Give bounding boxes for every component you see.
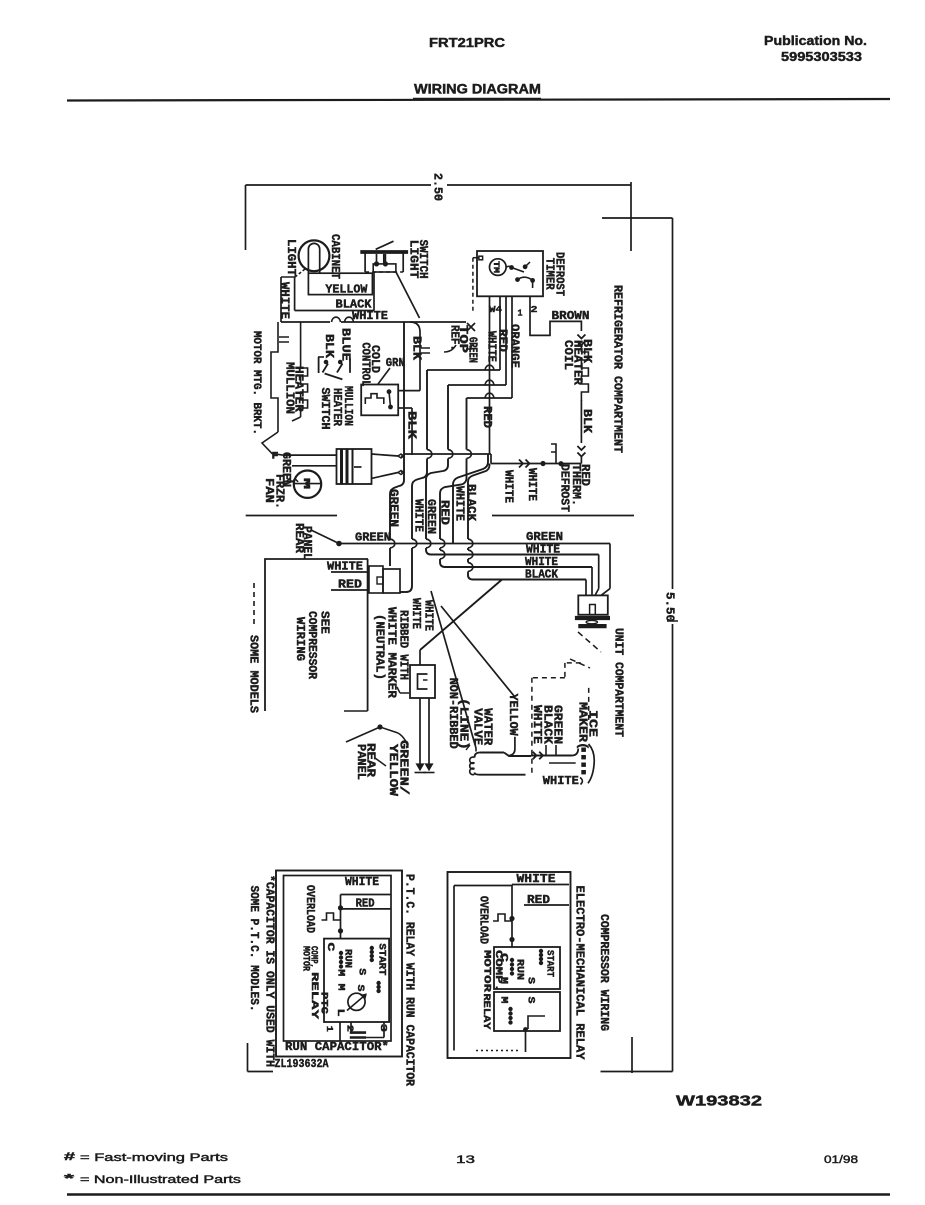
svg-text:W193832: W193832	[676, 1093, 762, 1109]
svg-text:GRN: GRN	[386, 357, 405, 370]
svg-text:13: 13	[456, 1154, 475, 1166]
svg-text:WIRING DIAGRAM: WIRING DIAGRAM	[414, 82, 541, 97]
svg-text:OVERLOAD: OVERLOAD	[303, 885, 316, 933]
svg-text:SEE: SEE	[317, 611, 330, 634]
svg-text:WHITE: WHITE	[411, 499, 424, 532]
svg-text:*CAPACITOR IS ONLY USED WITH: *CAPACITOR IS ONLY USED WITH	[263, 875, 276, 1067]
svg-text:ELECTRO-MECHANICAL RELAY: ELECTRO-MECHANICAL RELAY	[572, 886, 585, 1060]
svg-text:COMPRESSOR WIRING: COMPRESSOR WIRING	[597, 914, 610, 1031]
svg-text:BLK: BLK	[409, 336, 422, 360]
svg-text:WHITE: WHITE	[352, 310, 388, 323]
svg-text:BLK: BLK	[405, 411, 418, 439]
svg-text:S: S	[356, 968, 367, 975]
svg-text:WHITE: WHITE	[345, 876, 379, 889]
svg-text:WHITE: WHITE	[278, 282, 291, 319]
svg-text:SOME P.T.C. MODLES.: SOME P.T.C. MODLES.	[247, 886, 260, 1012]
svg-text:S: S	[354, 985, 365, 992]
svg-text:M: M	[335, 969, 346, 976]
svg-text:PANEL: PANEL	[300, 526, 313, 560]
svg-text:S: S	[525, 977, 536, 984]
svg-text:RUN: RUN	[342, 949, 353, 968]
svg-text:WHITE: WHITE	[421, 600, 434, 631]
svg-text:THERM.: THERM.	[569, 464, 582, 506]
svg-text:M: M	[335, 984, 346, 991]
svg-text:RUN CAPACITOR*: RUN CAPACITOR*	[285, 1040, 389, 1054]
svg-text:FAN: FAN	[262, 478, 275, 503]
svg-text:BLK: BLK	[580, 339, 593, 363]
svg-text:UNIT COMPARTMENT: UNIT COMPARTMENT	[611, 628, 624, 737]
svg-text:Publication No.: Publication No.	[764, 34, 867, 48]
svg-text:YELLOW: YELLOW	[506, 694, 519, 736]
svg-text:ZL193632A: ZL193632A	[275, 1058, 329, 1071]
svg-text:WHITE: WHITE	[543, 775, 579, 788]
svg-text:CABINET: CABINET	[328, 234, 341, 279]
svg-text:MAKER(: MAKER(	[575, 702, 588, 750]
svg-text:RED: RED	[437, 500, 450, 525]
svg-text:01/98: 01/98	[824, 1154, 858, 1166]
svg-text:= Non-Illustrated Parts: = Non-Illustrated Parts	[80, 1174, 242, 1186]
svg-text:5995303533: 5995303533	[781, 50, 862, 64]
svg-text:DEFROST: DEFROST	[553, 252, 566, 296]
svg-text:*: *	[64, 1172, 75, 1186]
svg-text:GREEN: GREEN	[424, 499, 437, 534]
svg-text:3: 3	[378, 1024, 388, 1032]
svg-text:2.50: 2.50	[430, 173, 443, 201]
svg-text:GREEN: GREEN	[355, 531, 391, 544]
svg-text:S: S	[525, 997, 536, 1004]
svg-text:WHITE: WHITE	[530, 705, 543, 744]
svg-text:= Fast-moving Parts: = Fast-moving Parts	[80, 1152, 229, 1164]
svg-text:RED: RED	[496, 329, 509, 352]
svg-text:START: START	[375, 943, 386, 975]
svg-text:1: 1	[324, 1026, 334, 1033]
svg-text:HEATER: HEATER	[292, 366, 305, 412]
svg-text:BLACK: BLACK	[464, 484, 477, 521]
svg-text:P.T.C. RELAY WITH RUN CAPACITO: P.T.C. RELAY WITH RUN CAPACITOR	[403, 874, 416, 1086]
svg-text:WHITE: WHITE	[501, 470, 514, 503]
svg-text:COMPRESSOR: COMPRESSOR	[305, 611, 318, 679]
svg-text:RED: RED	[480, 406, 493, 428]
svg-text:FRT21PRC: FRT21PRC	[429, 36, 505, 50]
svg-text:2: 2	[345, 1025, 355, 1032]
svg-text:C: C	[498, 953, 509, 962]
svg-text:#: #	[64, 1151, 75, 1163]
svg-text:RUN: RUN	[513, 959, 524, 980]
svg-text:F: F	[272, 452, 279, 463]
svg-text:1: 1	[518, 309, 524, 319]
svg-text:BLK: BLK	[580, 409, 593, 433]
svg-text:M: M	[498, 977, 509, 984]
svg-text:GREEN: GREEN	[386, 489, 399, 527]
svg-text:COLD: COLD	[368, 345, 381, 373]
svg-text:M: M	[301, 478, 311, 489]
svg-text:RELAY: RELAY	[480, 994, 491, 1030]
svg-text:YELLOW: YELLOW	[325, 284, 367, 297]
svg-text:MOTOR: MOTOR	[480, 950, 491, 992]
svg-text:SOME MODELS: SOME MODELS	[246, 635, 259, 713]
svg-text:MOTOR MTG. BRKT.: MOTOR MTG. BRKT.	[250, 331, 262, 435]
svg-text:ORANGE: ORANGE	[508, 324, 521, 368]
svg-text:GREEN: GREEN	[526, 531, 563, 544]
svg-text:TM: TM	[491, 261, 500, 273]
svg-text:(NEUTRAL): (NEUTRAL)	[372, 614, 385, 680]
svg-text:GREEN/: GREEN/	[397, 740, 410, 795]
svg-text:BLK: BLK	[322, 334, 335, 358]
svg-text:START: START	[543, 950, 554, 977]
svg-text:REAR: REAR	[364, 743, 377, 777]
svg-text:DEFROST: DEFROST	[558, 464, 571, 512]
svg-text:OVERLOAD: OVERLOAD	[476, 896, 489, 944]
svg-text:5.50: 5.50	[662, 592, 675, 622]
svg-text:WHITE: WHITE	[452, 486, 465, 521]
svg-text:SWITCH: SWITCH	[318, 388, 331, 430]
svg-text:(LINE): (LINE)	[457, 698, 470, 750]
svg-text:WHITE: WHITE	[409, 598, 422, 629]
svg-text:LIGHT: LIGHT	[284, 239, 297, 276]
svg-text:2: 2	[531, 304, 538, 315]
svg-text:M: M	[498, 997, 509, 1004]
svg-text:L: L	[334, 1009, 345, 1017]
svg-text:WIRING: WIRING	[293, 617, 306, 661]
svg-text:BLUE: BLUE	[338, 328, 351, 361]
svg-text:PTC: PTC	[317, 992, 328, 1014]
svg-text:C: C	[324, 942, 335, 951]
svg-text:GREEN: GREEN	[466, 337, 479, 363]
svg-text:MOTOR: MOTOR	[300, 946, 311, 971]
svg-text:SWITCH: SWITCH	[416, 240, 429, 279]
svg-text:VALVE: VALVE	[470, 708, 483, 745]
svg-text:WHITE: WHITE	[525, 468, 538, 501]
svg-text:REFRIGERATOR COMPARTMENT: REFRIGERATOR COMPARTMENT	[611, 285, 624, 453]
